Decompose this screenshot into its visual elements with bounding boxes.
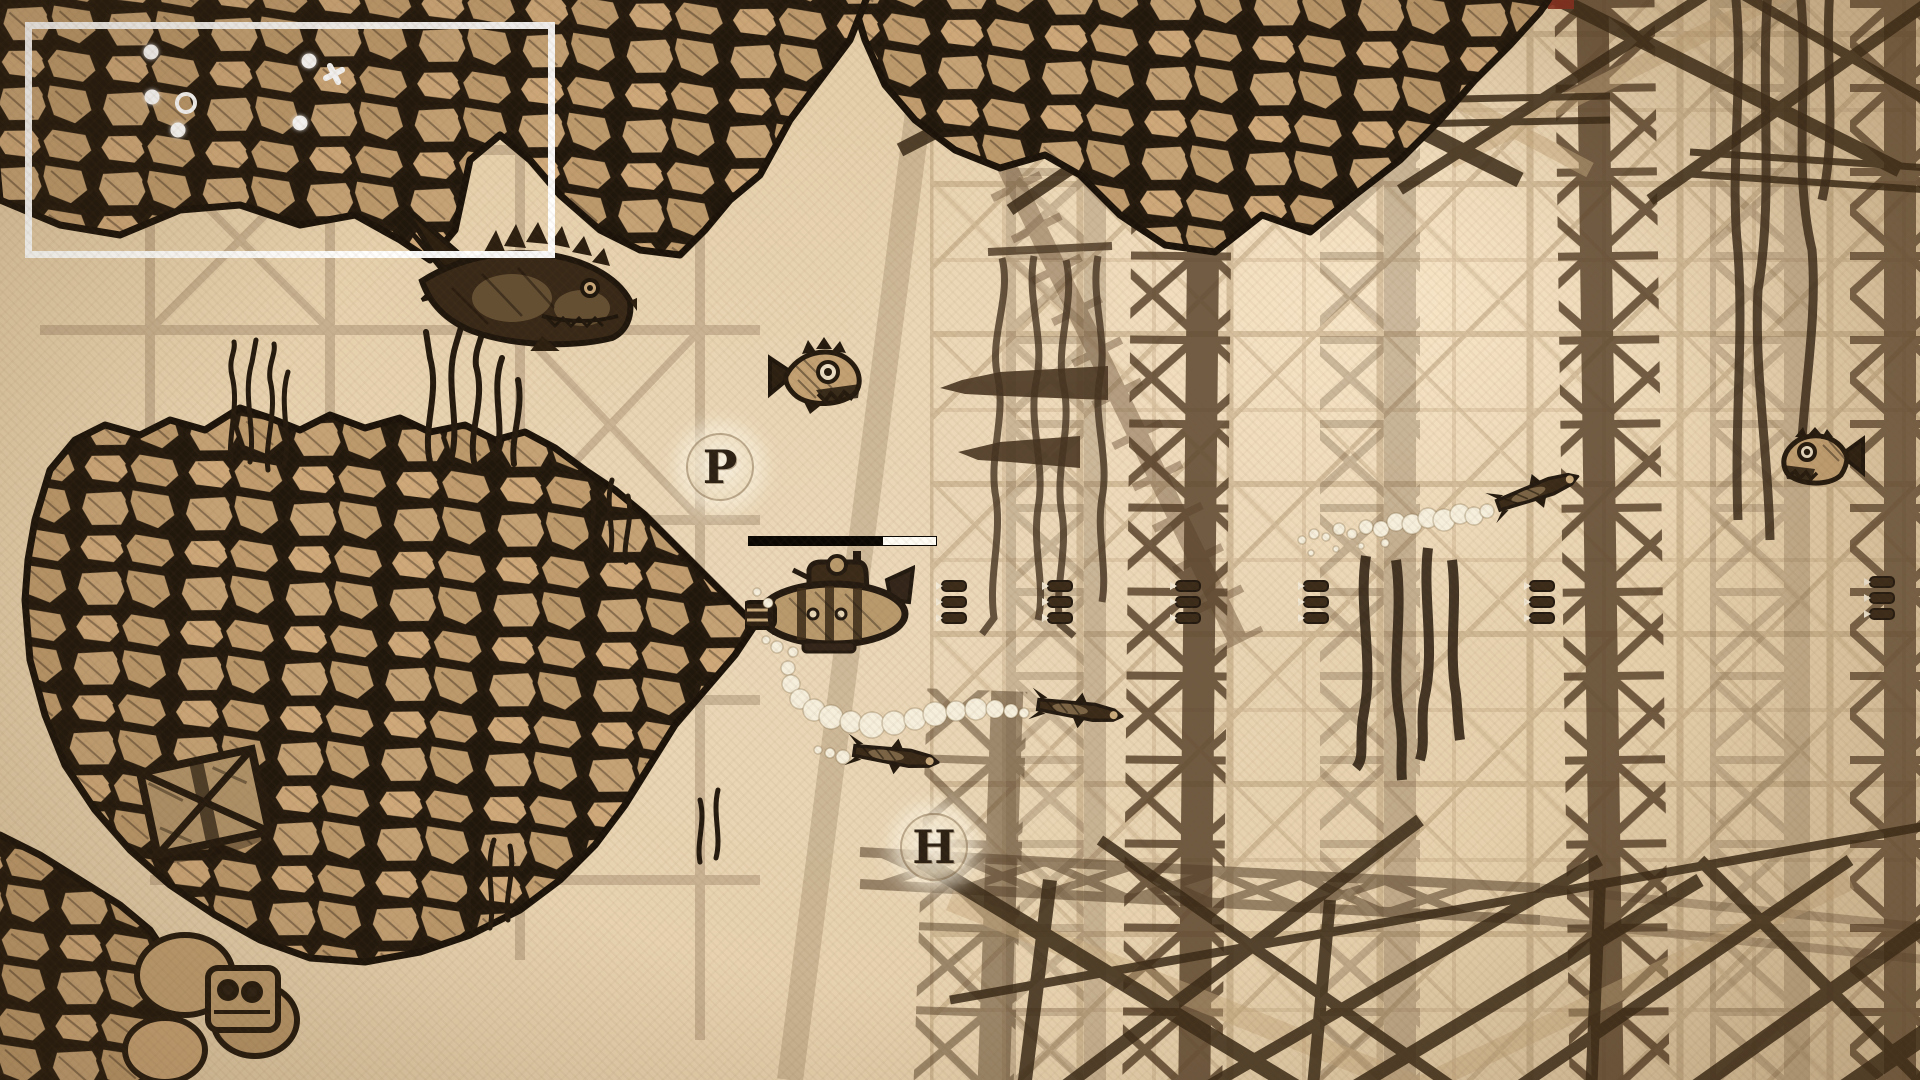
game-viewport[interactable]: P H xyxy=(0,0,1920,1080)
minimap xyxy=(25,22,555,258)
pickup-p-letter: P xyxy=(703,444,738,490)
minimap-cross-marker xyxy=(319,59,349,89)
pickup-p: P xyxy=(686,433,754,501)
minimap-dot xyxy=(171,123,186,138)
minimap-dot xyxy=(302,54,317,69)
minimap-dot xyxy=(144,45,159,60)
power-bar xyxy=(748,536,937,546)
pickup-h-letter: H xyxy=(912,824,955,870)
minimap-dot xyxy=(145,90,160,105)
minimap-dot xyxy=(293,116,308,131)
pickup-h: H xyxy=(900,813,968,881)
power-bar-fill xyxy=(883,537,936,545)
minimap-ring-marker xyxy=(175,92,197,114)
red-debris xyxy=(1548,0,1574,9)
